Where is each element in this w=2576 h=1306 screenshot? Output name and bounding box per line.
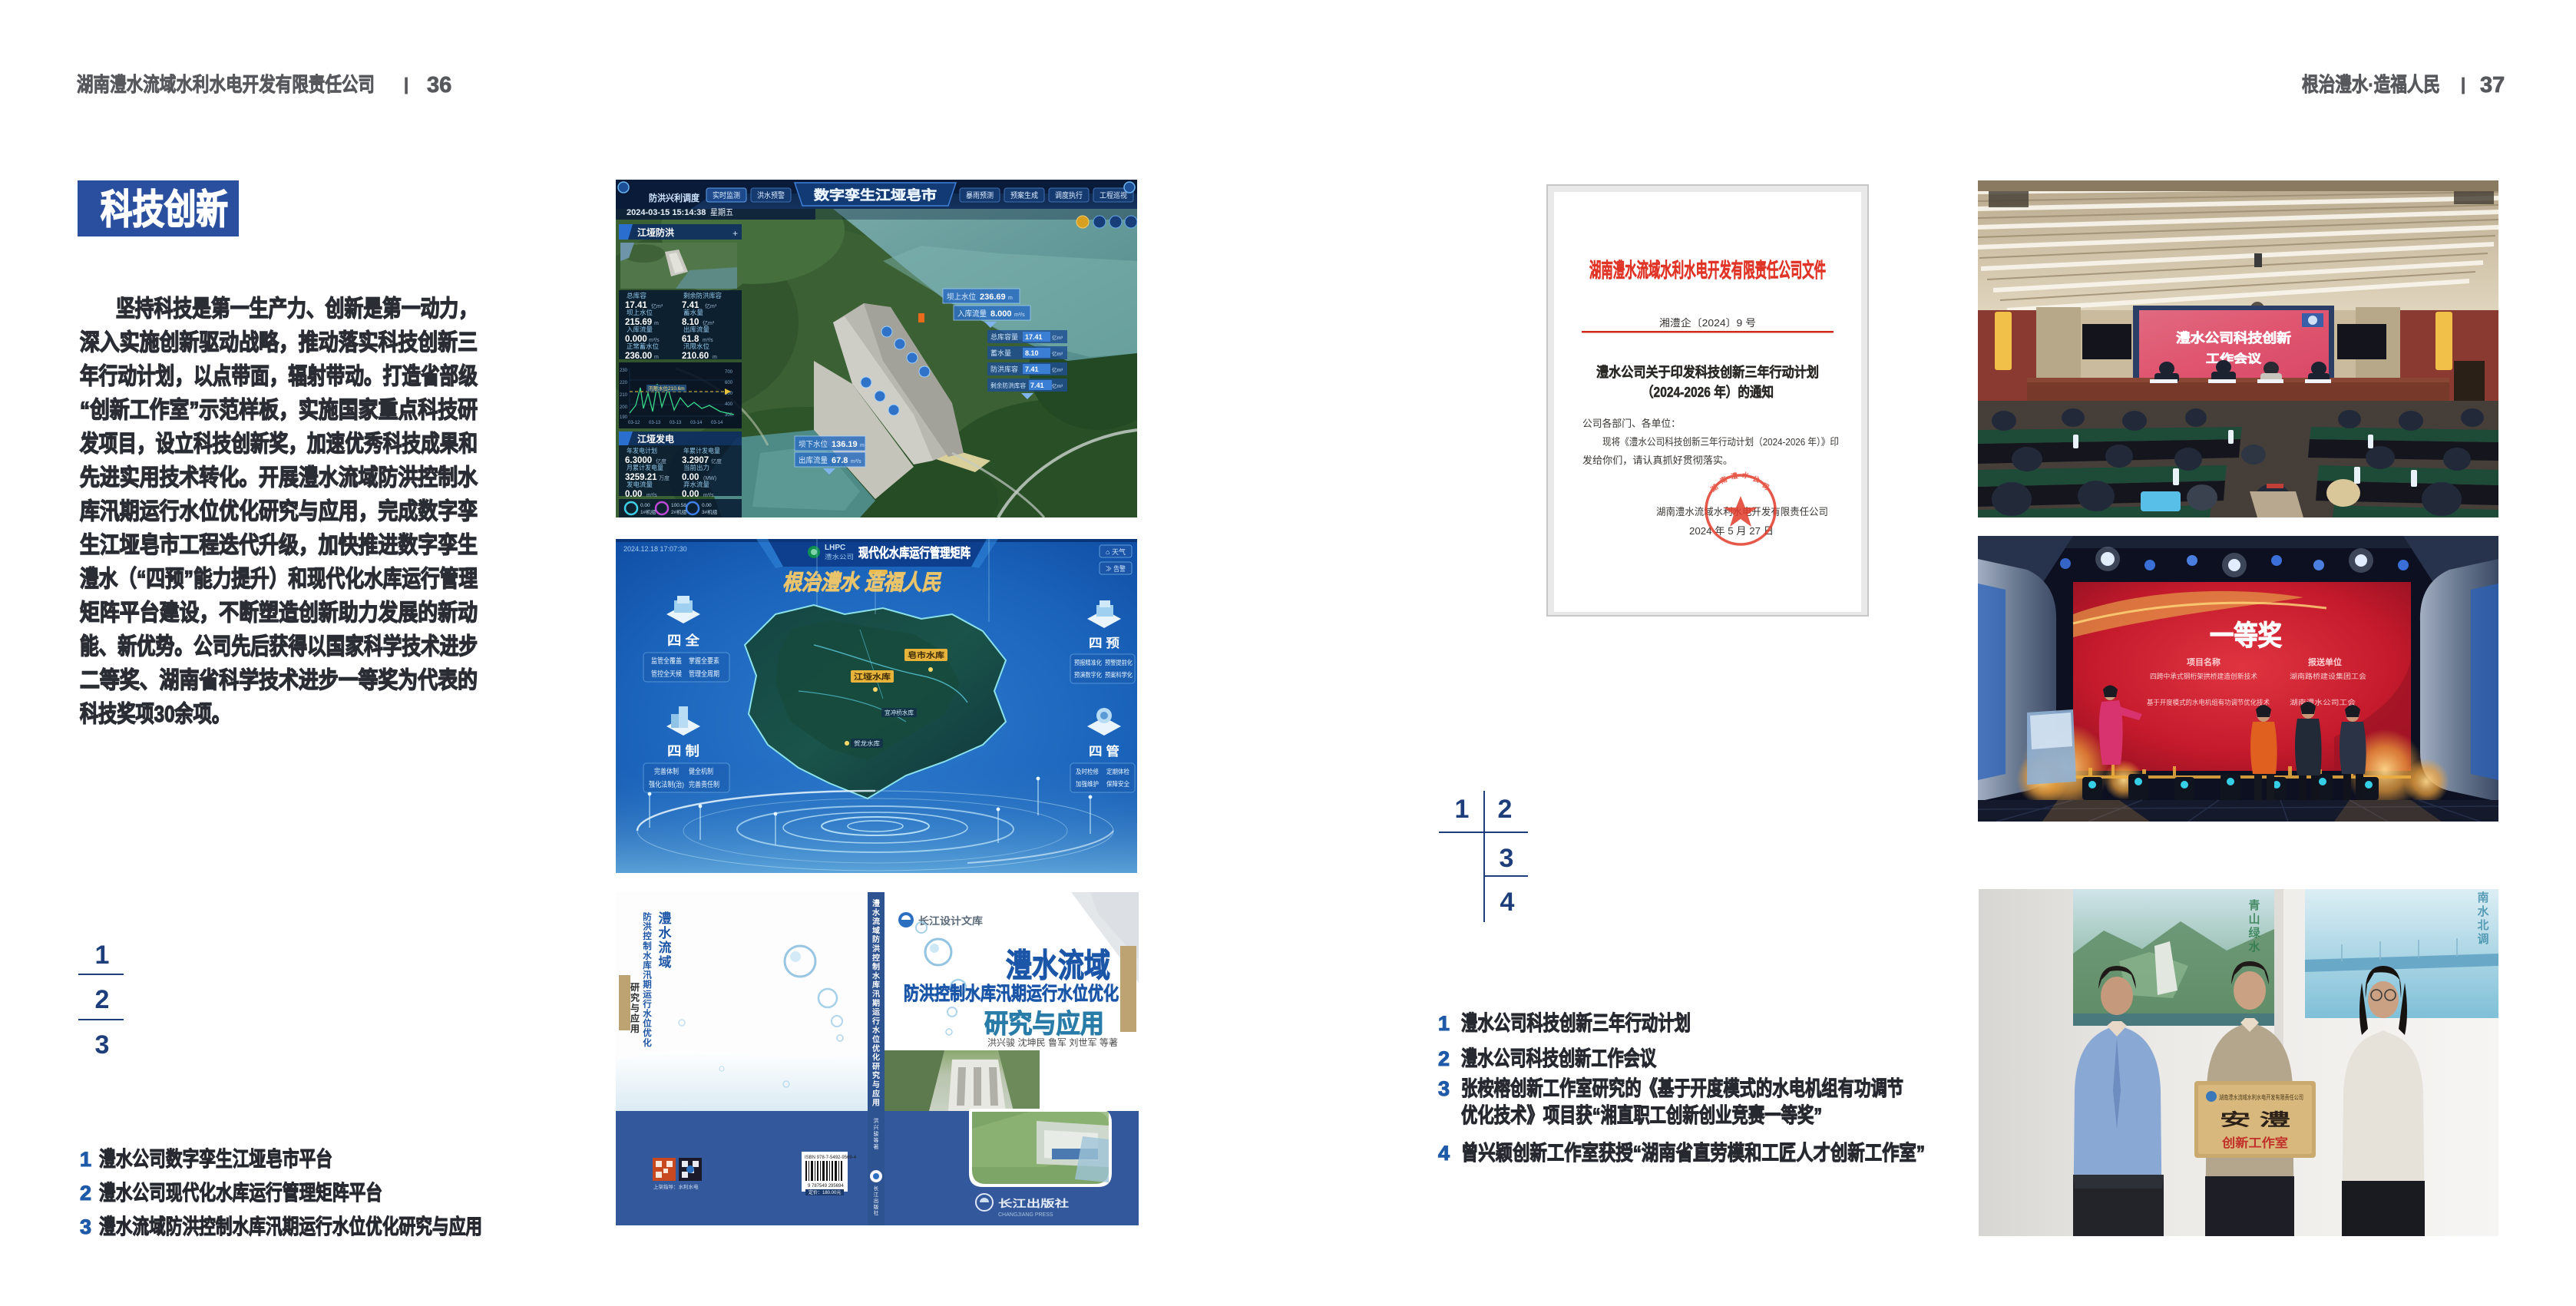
svg-text:预警提前化: 预警提前化 bbox=[1105, 659, 1133, 666]
svg-text:400: 400 bbox=[725, 402, 733, 407]
svg-text:长江出版社: 长江出版社 bbox=[998, 1198, 1069, 1209]
svg-text:及时检修: 及时检修 bbox=[1076, 768, 1099, 775]
svg-text:数字孪生江垭皂市: 数字孪生江垭皂市 bbox=[814, 187, 937, 203]
svg-text:215.69: 215.69 bbox=[625, 318, 652, 327]
svg-text:4: 4 bbox=[1500, 888, 1515, 917]
svg-text:亿m³: 亿m³ bbox=[1052, 382, 1063, 389]
svg-text:二等奖、湖南省科学技术进步一等奖为代表的: 二等奖、湖南省科学技术进步一等奖为代表的 bbox=[80, 667, 478, 693]
svg-text:宜冲桥水库: 宜冲桥水库 bbox=[885, 709, 914, 716]
svg-text:汛限水位210.6m: 汛限水位210.6m bbox=[648, 385, 685, 392]
svg-text:3#机组: 3#机组 bbox=[702, 508, 718, 515]
svg-text:四 制: 四 制 bbox=[667, 743, 699, 759]
svg-text:澧水公司科技创新工作会议: 澧水公司科技创新工作会议 bbox=[1461, 1046, 1657, 1070]
svg-text:m³/s: m³/s bbox=[1014, 312, 1025, 318]
svg-text:安 澧: 安 澧 bbox=[2220, 1110, 2290, 1129]
svg-text:亿m³: 亿m³ bbox=[705, 303, 717, 309]
svg-text:37: 37 bbox=[2480, 73, 2505, 98]
svg-text:220: 220 bbox=[620, 381, 628, 385]
svg-text:强化法制(治): 强化法制(治) bbox=[649, 780, 684, 789]
svg-text:亿m³: 亿m³ bbox=[651, 303, 663, 309]
svg-text:|: | bbox=[404, 74, 408, 94]
svg-text:2024-03-15 15:14:38: 2024-03-15 15:14:38 bbox=[627, 208, 706, 217]
svg-text:亿m³: 亿m³ bbox=[1052, 334, 1063, 341]
svg-text:预演数字化: 预演数字化 bbox=[1074, 671, 1102, 679]
svg-text:澧水公司: 澧水公司 bbox=[825, 553, 854, 560]
svg-text:亿m³: 亿m³ bbox=[1052, 366, 1063, 373]
svg-text:⌂ 天气: ⌂ 天气 bbox=[1106, 547, 1126, 556]
svg-text:1: 1 bbox=[1455, 795, 1470, 824]
svg-text:(MW): (MW) bbox=[703, 476, 716, 481]
svg-text:m: m bbox=[860, 443, 865, 448]
svg-text:加强维护: 加强维护 bbox=[1076, 780, 1099, 788]
svg-text:总库容量: 总库容量 bbox=[990, 332, 1018, 341]
svg-text:0.00: 0.00 bbox=[640, 503, 650, 508]
svg-text:澧水公司科技创新三年行动计划: 澧水公司科技创新三年行动计划 bbox=[1461, 1011, 1691, 1035]
svg-text:皂市水库: 皂市水库 bbox=[908, 650, 944, 660]
svg-text:管控全天候: 管控全天候 bbox=[651, 670, 682, 679]
svg-text:澧水流域防洪控制水库汛期运行水位优化研究与应用: 澧水流域防洪控制水库汛期运行水位优化研究与应用 bbox=[871, 898, 881, 1108]
svg-text:湖南澧水流域水利水电开发有限责任公司文件: 湖南澧水流域水利水电开发有限责任公司文件 bbox=[1589, 259, 1826, 282]
svg-text:0.000: 0.000 bbox=[625, 335, 647, 344]
svg-text:四 预: 四 预 bbox=[1089, 636, 1119, 650]
svg-text:2024.12.18 17:07:30: 2024.12.18 17:07:30 bbox=[623, 545, 687, 553]
svg-text:136.19: 136.19 bbox=[832, 440, 858, 449]
svg-text:03-13: 03-13 bbox=[670, 421, 682, 425]
svg-text:+: + bbox=[732, 228, 738, 239]
svg-text:科技创新: 科技创新 bbox=[101, 188, 228, 233]
svg-text:坝上水位: 坝上水位 bbox=[947, 292, 976, 302]
svg-text:m³/s: m³/s bbox=[851, 459, 861, 465]
svg-text:工作会议: 工作会议 bbox=[2206, 352, 2262, 365]
svg-text:洪兴骏 沈坤民 鲁军 刘世军 等著: 洪兴骏 沈坤民 鲁军 刘世军 等著 bbox=[987, 1037, 1118, 1048]
svg-text:定价：180.00元: 定价：180.00元 bbox=[809, 1189, 841, 1195]
svg-text:36: 36 bbox=[427, 73, 451, 98]
svg-text:0.00: 0.00 bbox=[625, 490, 642, 499]
svg-text:澧水流域防洪控制水库汛期运行水位优化研究与应用: 澧水流域防洪控制水库汛期运行水位优化研究与应用 bbox=[99, 1215, 482, 1238]
svg-text:年行动计划，以点带面，辐射带动。打造省部级: 年行动计划，以点带面，辐射带动。打造省部级 bbox=[80, 363, 478, 389]
svg-text:四 全: 四 全 bbox=[667, 633, 700, 648]
svg-text:根治澧水 造福人民: 根治澧水 造福人民 bbox=[782, 570, 942, 594]
svg-text:生江垭皂市工程迭代升级，加快推进数字孪生: 生江垭皂市工程迭代升级，加快推进数字孪生 bbox=[80, 532, 478, 558]
svg-text:m³/s: m³/s bbox=[703, 493, 714, 498]
svg-text:上架指导：水利水电: 上架指导：水利水电 bbox=[653, 1183, 699, 1190]
svg-text:年发电计划: 年发电计划 bbox=[627, 447, 657, 455]
svg-text:预报精准化: 预报精准化 bbox=[1074, 659, 1102, 666]
svg-text:CHANGJIANG PRESS: CHANGJIANG PRESS bbox=[998, 1212, 1053, 1218]
svg-text:亿m³: 亿m³ bbox=[703, 319, 715, 326]
svg-text:澧水流域: 澧水流域 bbox=[659, 911, 673, 970]
svg-text:完善体制: 完善体制 bbox=[654, 767, 679, 776]
svg-text:湖南澧水流域水利水电开发有限责任公司: 湖南澧水流域水利水电开发有限责任公司 bbox=[77, 73, 375, 96]
svg-text:江垭发电: 江垭发电 bbox=[637, 433, 674, 445]
svg-text:100.58: 100.58 bbox=[671, 503, 686, 508]
svg-text:研究与应用: 研究与应用 bbox=[630, 982, 640, 1034]
svg-text:江垭防洪: 江垭防洪 bbox=[637, 226, 674, 238]
svg-text:根治澧水·造福人民: 根治澧水·造福人民 bbox=[2302, 73, 2440, 96]
svg-text:03-12: 03-12 bbox=[628, 421, 640, 425]
svg-text:m: m bbox=[713, 355, 717, 360]
svg-text:库汛期运行水位优化研究与应用，完成数字孪: 库汛期运行水位优化研究与应用，完成数字孪 bbox=[80, 498, 478, 524]
svg-text:|: | bbox=[2461, 74, 2465, 94]
svg-text:项目名称: 项目名称 bbox=[2187, 656, 2221, 667]
svg-text:防洪兴利调度: 防洪兴利调度 bbox=[649, 192, 700, 203]
svg-text:防洪控制水库汛期运行水位优化: 防洪控制水库汛期运行水位优化 bbox=[904, 983, 1119, 1004]
svg-text:创新工作室: 创新工作室 bbox=[2221, 1136, 2288, 1150]
svg-text:研究与应用: 研究与应用 bbox=[984, 1010, 1104, 1039]
svg-text:亿m³: 亿m³ bbox=[1052, 350, 1063, 357]
svg-text:监管全覆盖: 监管全覆盖 bbox=[651, 656, 682, 666]
svg-text:长江设计文库: 长江设计文库 bbox=[918, 915, 983, 927]
svg-text:发项目，设立科技创新奖，加速优秀科技成果和: 发项目，设立科技创新奖，加速优秀科技成果和 bbox=[79, 431, 478, 457]
svg-text:3: 3 bbox=[1500, 844, 1514, 873]
svg-text:190: 190 bbox=[620, 415, 628, 420]
svg-text:m: m bbox=[654, 321, 659, 326]
svg-text:3259.21: 3259.21 bbox=[625, 473, 657, 482]
svg-text:预案科学化: 预案科学化 bbox=[1105, 671, 1133, 679]
svg-text:基于开度模式的水电机组有功调节优化技术: 基于开度模式的水电机组有功调节优化技术 bbox=[2147, 698, 2270, 706]
svg-text:澧水公司现代化水库运行管理矩阵平台: 澧水公司现代化水库运行管理矩阵平台 bbox=[99, 1181, 382, 1205]
svg-text:0.00: 0.00 bbox=[682, 490, 699, 499]
svg-text:年累计发电量: 年累计发电量 bbox=[683, 447, 720, 455]
svg-text:61.8: 61.8 bbox=[682, 335, 699, 344]
svg-text:≫ 告警: ≫ 告警 bbox=[1106, 564, 1126, 573]
svg-text:0.00: 0.00 bbox=[702, 503, 712, 508]
svg-text:m³/s: m³/s bbox=[649, 338, 660, 343]
svg-text:深入实施创新驱动战略，推动落实科技创新三: 深入实施创新驱动战略，推动落实科技创新三 bbox=[80, 329, 478, 355]
svg-text:矩阵平台建设，不断塑造创新助力发展的新动: 矩阵平台建设，不断塑造创新助力发展的新动 bbox=[80, 600, 478, 626]
svg-text:调度执行: 调度执行 bbox=[1055, 190, 1083, 200]
svg-text:公司各部门、各单位：: 公司各部门、各单位： bbox=[1582, 418, 1681, 429]
svg-text:入库流量: 入库流量 bbox=[957, 309, 987, 319]
svg-text:8.10: 8.10 bbox=[682, 318, 699, 327]
svg-text:7.41: 7.41 bbox=[1025, 365, 1039, 373]
svg-text:1: 1 bbox=[95, 941, 110, 970]
svg-text:一等奖: 一等奖 bbox=[2210, 620, 2282, 651]
svg-text:2#机组: 2#机组 bbox=[671, 508, 687, 515]
svg-text:四 管: 四 管 bbox=[1089, 744, 1119, 759]
svg-text:张桉榕创新工作室研究的《基于开度模式的水电机组有功调节: 张桉榕创新工作室研究的《基于开度模式的水电机组有功调节 bbox=[1461, 1076, 1903, 1100]
svg-text:0.00: 0.00 bbox=[682, 473, 699, 482]
svg-text:236.00: 236.00 bbox=[625, 352, 652, 361]
svg-text:m³/s: m³/s bbox=[703, 338, 713, 343]
svg-text:67.8: 67.8 bbox=[832, 456, 848, 465]
svg-text:管理全周期: 管理全周期 bbox=[689, 670, 719, 679]
svg-text:江垭水库: 江垭水库 bbox=[854, 672, 891, 682]
svg-text:万度: 万度 bbox=[659, 474, 670, 481]
svg-text:LHPC: LHPC bbox=[825, 544, 845, 552]
svg-text:湘澧企〔2024〕9 号: 湘澧企〔2024〕9 号 bbox=[1659, 317, 1756, 329]
svg-text:健全机制: 健全机制 bbox=[689, 767, 713, 776]
svg-text:曾兴颖创新工作室获授“湖南省直劳模和工匠人才创新工作室”: 曾兴颖创新工作室获授“湖南省直劳模和工匠人才创新工作室” bbox=[1461, 1141, 1925, 1165]
svg-text:洪水预警: 洪水预警 bbox=[757, 190, 785, 200]
svg-text:2: 2 bbox=[1498, 795, 1513, 824]
svg-text:先进实用技术转化。开展澧水流域防洪控制水: 先进实用技术转化。开展澧水流域防洪控制水 bbox=[80, 465, 478, 491]
svg-text:蓄水量: 蓄水量 bbox=[990, 349, 1011, 357]
svg-text:200: 200 bbox=[620, 405, 628, 410]
svg-text:总库容: 总库容 bbox=[627, 292, 646, 299]
svg-text:预案生成: 预案生成 bbox=[1010, 190, 1038, 200]
svg-text:2: 2 bbox=[80, 1182, 91, 1205]
svg-text:亿度: 亿度 bbox=[656, 458, 666, 465]
svg-text:优化技术》项目获“湘直职工创新创业竞赛一等奖”: 优化技术》项目获“湘直职工创新创业竞赛一等奖” bbox=[1461, 1103, 1822, 1127]
svg-text:掌握全要素: 掌握全要素 bbox=[689, 656, 719, 666]
svg-text:澧水流域: 澧水流域 bbox=[1006, 947, 1110, 984]
svg-text:水: 水 bbox=[1742, 471, 1750, 479]
svg-text:m: m bbox=[1008, 296, 1013, 301]
svg-text:洪兴骏等著: 洪兴骏等著 bbox=[874, 1117, 879, 1150]
svg-text:发给你们，请认真抓好贯彻落实。: 发给你们，请认真抓好贯彻落实。 bbox=[1582, 455, 1733, 466]
svg-text:17.41: 17.41 bbox=[1025, 333, 1043, 341]
svg-text:工程巡视: 工程巡视 bbox=[1100, 190, 1127, 200]
svg-text:贺龙水库: 贺龙水库 bbox=[854, 739, 880, 747]
svg-text:澧水（“四预”能力提升）和现代化水库运行管理: 澧水（“四预”能力提升）和现代化水库运行管理 bbox=[80, 566, 478, 592]
svg-text:星期五: 星期五 bbox=[710, 207, 733, 217]
svg-text:210.60: 210.60 bbox=[682, 352, 709, 361]
svg-text:澧水公司关于印发科技创新三年行动计划: 澧水公司关于印发科技创新三年行动计划 bbox=[1596, 364, 1819, 380]
svg-text:科技奖项30余项。: 科技奖项30余项。 bbox=[80, 701, 230, 727]
svg-text:长江出版社: 长江出版社 bbox=[874, 1185, 879, 1216]
svg-text:2: 2 bbox=[1438, 1047, 1450, 1070]
svg-text:湖南澧水公司工会: 湖南澧水公司工会 bbox=[2290, 698, 2356, 706]
svg-text:3.2907: 3.2907 bbox=[682, 456, 709, 465]
svg-text:暴雨预测: 暴雨预测 bbox=[966, 190, 994, 200]
svg-text:8.000: 8.000 bbox=[990, 309, 1012, 319]
svg-text:6.3000: 6.3000 bbox=[625, 456, 652, 465]
svg-text:3: 3 bbox=[95, 1030, 110, 1060]
svg-text:湖南路桥建设集团工会: 湖南路桥建设集团工会 bbox=[2290, 672, 2366, 680]
svg-text:坚持科技是第一生产力、创新是第一动力，: 坚持科技是第一生产力、创新是第一动力， bbox=[116, 296, 478, 322]
svg-text:4: 4 bbox=[1438, 1142, 1450, 1165]
svg-text:四跨中承式钢桁架拱桥建造创新技术: 四跨中承式钢桁架拱桥建造创新技术 bbox=[2150, 672, 2257, 680]
svg-text:700: 700 bbox=[725, 370, 733, 375]
svg-text:澧水公司科技创新: 澧水公司科技创新 bbox=[2176, 330, 2291, 346]
svg-text:2: 2 bbox=[95, 985, 110, 1014]
svg-text:出库流量: 出库流量 bbox=[799, 455, 828, 465]
svg-text:剩余防洪库容: 剩余防洪库容 bbox=[683, 292, 722, 299]
svg-text:剩余防洪库容: 剩余防洪库容 bbox=[990, 382, 1026, 389]
svg-text:报送单位: 报送单位 bbox=[2308, 656, 2342, 667]
svg-text:亿度: 亿度 bbox=[711, 458, 722, 465]
svg-text:保障安全: 保障安全 bbox=[1106, 780, 1129, 788]
svg-text:17.41: 17.41 bbox=[625, 301, 647, 310]
svg-text:7.41: 7.41 bbox=[682, 301, 699, 310]
svg-text:210: 210 bbox=[620, 393, 628, 398]
svg-text:7.41: 7.41 bbox=[1030, 382, 1044, 389]
svg-text:3: 3 bbox=[1438, 1077, 1450, 1100]
svg-text:现将《澧水公司科技创新三年行动计划（2024-2026 年）: 现将《澧水公司科技创新三年行动计划（2024-2026 年）》印 bbox=[1602, 436, 1839, 448]
svg-text:m³/s: m³/s bbox=[646, 493, 657, 498]
svg-text:完善责任制: 完善责任制 bbox=[689, 780, 719, 789]
svg-text:防洪控制水库汛期运行水位优化: 防洪控制水库汛期运行水位优化 bbox=[642, 911, 652, 1048]
svg-text:“创新工作室”示范样板，实施国家重点科技研: “创新工作室”示范样板，实施国家重点科技研 bbox=[80, 397, 478, 423]
svg-text:2024 年 5 月 27 日: 2024 年 5 月 27 日 bbox=[1689, 525, 1774, 537]
svg-text:1: 1 bbox=[1438, 1012, 1450, 1035]
svg-text:澧水公司数字孪生江垭皂市平台: 澧水公司数字孪生江垭皂市平台 bbox=[99, 1147, 332, 1171]
svg-text:（2024-2026 年）的通知: （2024-2026 年）的通知 bbox=[1642, 384, 1774, 400]
svg-text:能、新优势。公司先后获得以国家科学技术进步: 能、新优势。公司先后获得以国家科学技术进步 bbox=[80, 633, 478, 660]
svg-text:03-14: 03-14 bbox=[690, 421, 703, 425]
svg-text:湖南澧水流域水利水电开发有限责任公司: 湖南澧水流域水利水电开发有限责任公司 bbox=[2219, 1093, 2303, 1101]
svg-text:m: m bbox=[654, 355, 659, 360]
svg-text:03-13: 03-13 bbox=[649, 421, 661, 425]
svg-text:ISBN 978-7-5492-9569-4: ISBN 978-7-5492-9569-4 bbox=[805, 1156, 857, 1160]
svg-text:600: 600 bbox=[725, 381, 733, 385]
svg-text:坝下水位: 坝下水位 bbox=[799, 439, 828, 449]
svg-text:9 787549 295694: 9 787549 295694 bbox=[808, 1184, 844, 1189]
svg-text:实时监测: 实时监测 bbox=[713, 190, 740, 200]
svg-text:1#机组: 1#机组 bbox=[640, 508, 656, 515]
svg-text:防洪库容: 防洪库容 bbox=[990, 365, 1018, 373]
svg-text:230: 230 bbox=[620, 369, 628, 373]
svg-text:3: 3 bbox=[80, 1215, 91, 1238]
svg-text:03-14: 03-14 bbox=[711, 421, 723, 425]
svg-text:定期体检: 定期体检 bbox=[1106, 768, 1129, 775]
svg-text:236.69: 236.69 bbox=[980, 293, 1006, 302]
svg-text:8.10: 8.10 bbox=[1025, 349, 1039, 357]
svg-text:1: 1 bbox=[80, 1148, 91, 1171]
svg-text:现代化水库运行管理矩阵: 现代化水库运行管理矩阵 bbox=[858, 545, 971, 560]
